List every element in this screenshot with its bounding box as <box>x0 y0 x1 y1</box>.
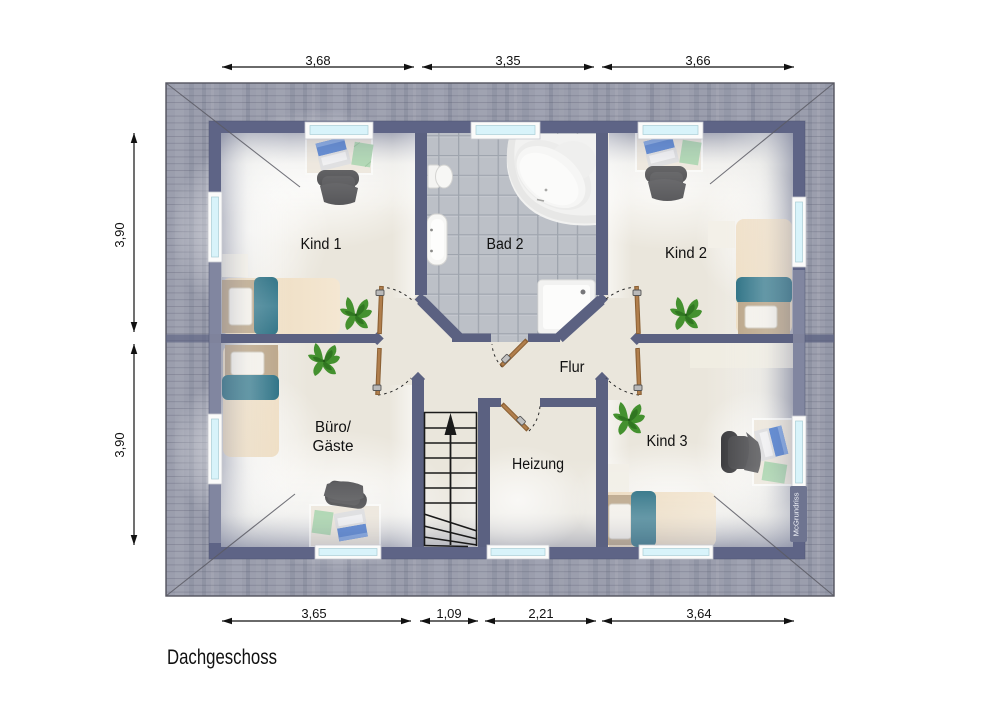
svg-text:2,21: 2,21 <box>528 606 553 621</box>
svg-text:3,64: 3,64 <box>686 606 711 621</box>
svg-text:Dachgeschoss: Dachgeschoss <box>167 645 277 669</box>
svg-text:1,09: 1,09 <box>436 606 461 621</box>
svg-text:Kind 3: Kind 3 <box>647 433 688 450</box>
svg-text:3,66: 3,66 <box>685 53 710 68</box>
svg-text:3,35: 3,35 <box>495 53 520 68</box>
svg-text:Gäste: Gäste <box>313 438 354 455</box>
svg-text:Heizung: Heizung <box>512 456 564 473</box>
svg-text:Flur: Flur <box>560 359 585 376</box>
svg-text:Kind 1: Kind 1 <box>301 236 342 253</box>
svg-text:Büro/: Büro/ <box>315 419 352 436</box>
svg-text:Bad 2: Bad 2 <box>487 236 524 253</box>
svg-text:3,90: 3,90 <box>112 222 127 247</box>
svg-text:3,68: 3,68 <box>305 53 330 68</box>
svg-text:McGrundriss: McGrundriss <box>792 492 801 536</box>
svg-text:3,65: 3,65 <box>301 606 326 621</box>
svg-text:Kind 2: Kind 2 <box>665 245 707 262</box>
svg-text:3,90: 3,90 <box>112 432 127 457</box>
